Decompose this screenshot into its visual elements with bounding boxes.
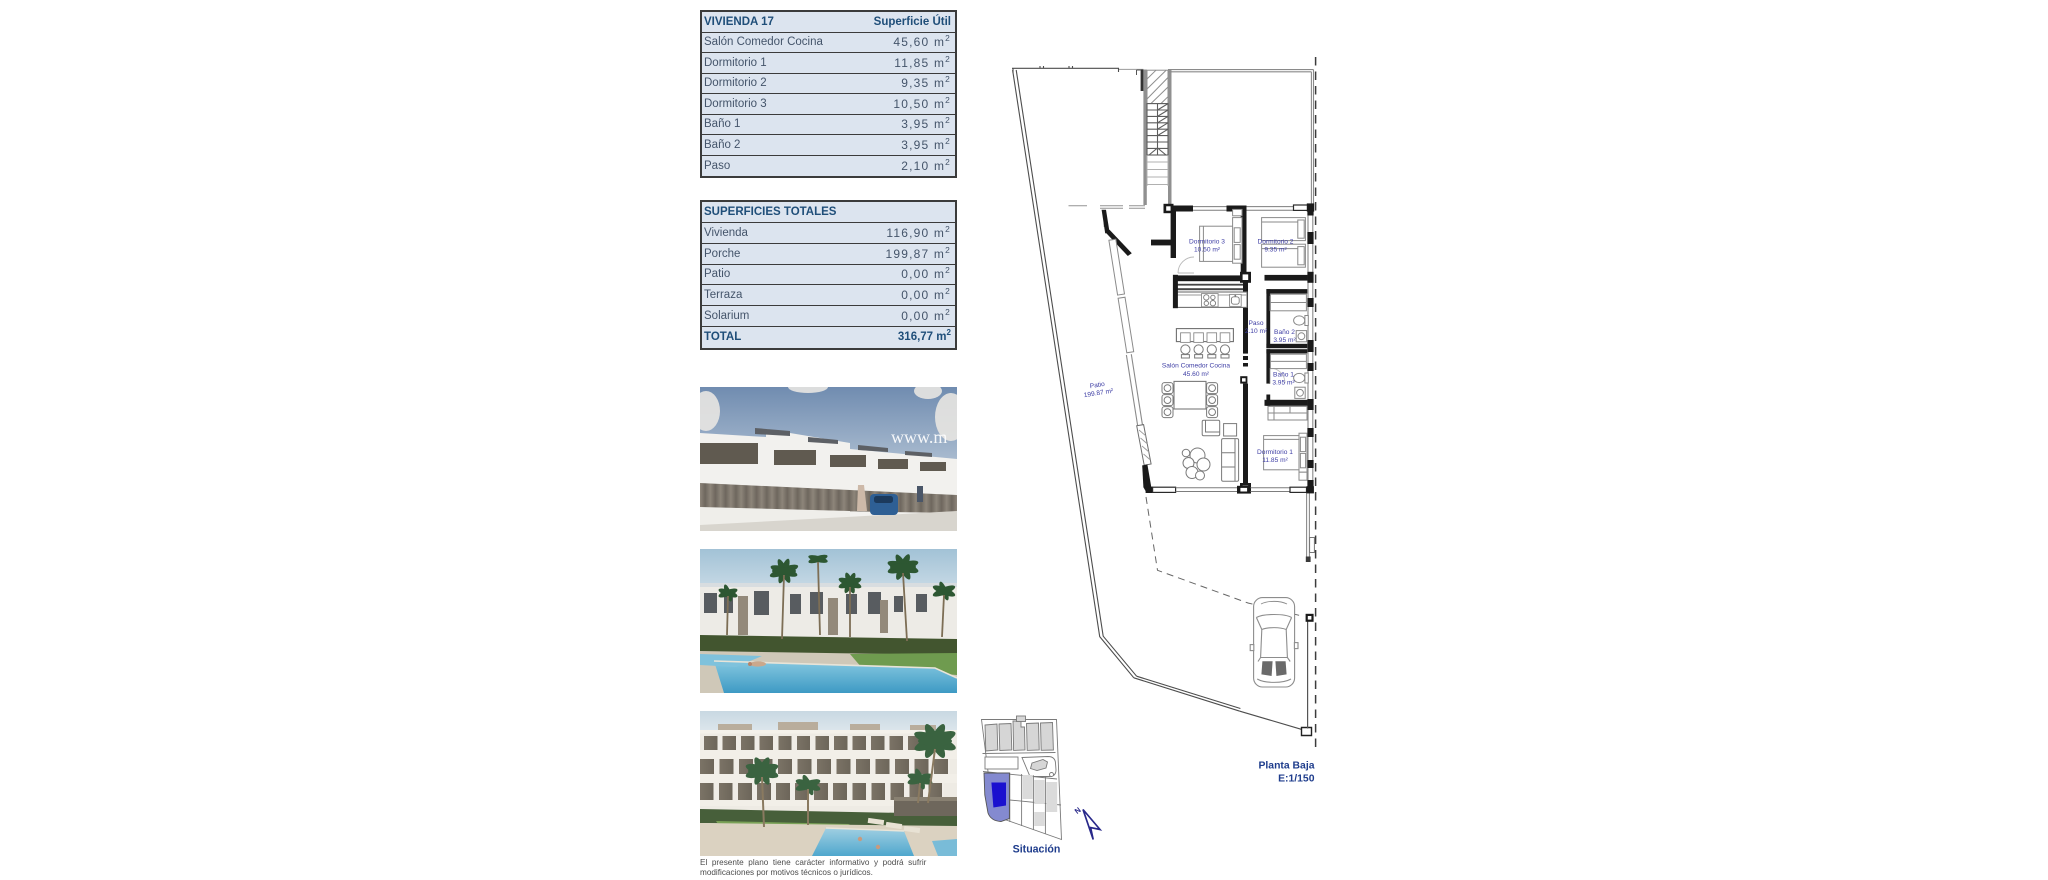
svg-text:Situación: Situación bbox=[1013, 844, 1061, 856]
svg-text:199.87 m²: 199.87 m² bbox=[1083, 388, 1114, 400]
svg-text:Dormitorio 1: Dormitorio 1 bbox=[1257, 449, 1293, 456]
svg-text:Baño 2: Baño 2 bbox=[1274, 329, 1295, 336]
svg-text:45.60 m²: 45.60 m² bbox=[1183, 371, 1210, 378]
svg-text:9.35 m²: 9.35 m² bbox=[1264, 247, 1287, 254]
svg-text:2.10 m²: 2.10 m² bbox=[1245, 328, 1268, 335]
svg-text:11.85 m²: 11.85 m² bbox=[1262, 457, 1288, 464]
svg-text:Planta Baja: Planta Baja bbox=[1258, 761, 1314, 772]
svg-text:3.95 m²: 3.95 m² bbox=[1272, 380, 1295, 387]
svg-text:Baño 1: Baño 1 bbox=[1273, 372, 1294, 379]
svg-text:10.50 m²: 10.50 m² bbox=[1194, 247, 1221, 254]
svg-text:Dormitorio 2: Dormitorio 2 bbox=[1258, 239, 1294, 246]
svg-text:Paso: Paso bbox=[1248, 320, 1263, 327]
svg-text:N: N bbox=[1073, 805, 1083, 815]
svg-text:Dormitorio 3: Dormitorio 3 bbox=[1189, 239, 1225, 246]
svg-text:3.95 m²: 3.95 m² bbox=[1273, 337, 1296, 344]
svg-text:Salón Comedor Cocina: Salón Comedor Cocina bbox=[1162, 363, 1231, 370]
svg-text:E:1/150: E:1/150 bbox=[1278, 774, 1315, 785]
